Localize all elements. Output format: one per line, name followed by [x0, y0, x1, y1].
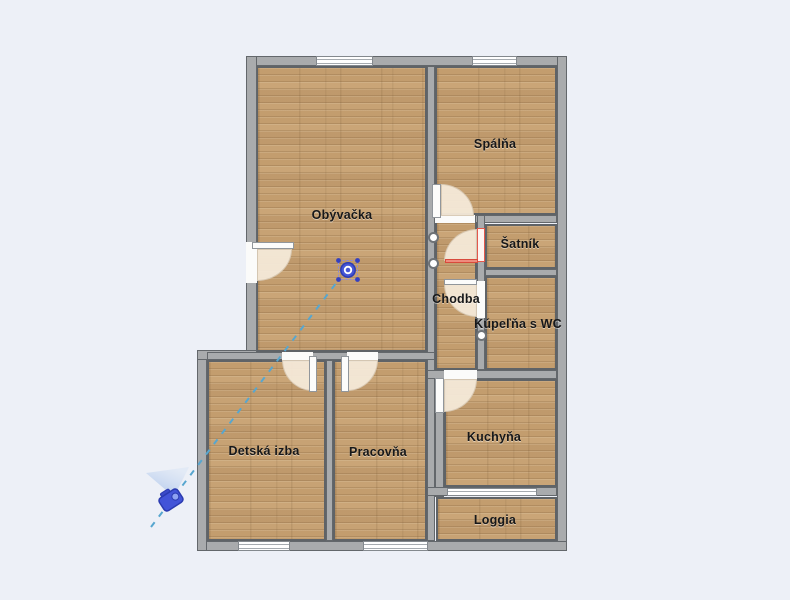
- selection-handle[interactable]: [428, 258, 439, 269]
- wall-obyvacka-bottom[interactable]: [207, 352, 435, 360]
- door-leaf-spalna[interactable]: [432, 184, 441, 218]
- room-label-satnik: Šatník: [501, 237, 540, 251]
- door-opening-spalna: [435, 215, 475, 223]
- wall-satnik-kupelna[interactable]: [485, 269, 557, 276]
- wall-outer-left-upper[interactable]: [246, 56, 257, 360]
- selection-handle[interactable]: [476, 330, 487, 341]
- wall-detska-pracovna[interactable]: [326, 360, 333, 541]
- room-label-kupelna: Kúpeľňa s WC: [474, 317, 562, 331]
- door-leaf-kupelna[interactable]: [444, 279, 477, 285]
- camera-view-cone: [146, 467, 189, 497]
- door-leaf-detska[interactable]: [309, 356, 317, 392]
- door-leaf-kuchyna[interactable]: [435, 378, 444, 413]
- door-opening-pracovna: [347, 352, 378, 360]
- room-label-spalna: Spálňa: [474, 137, 516, 151]
- door-opening-kuchyna: [444, 370, 477, 379]
- room-label-kuchyna: Kuchyňa: [467, 430, 521, 444]
- window-spalna-top[interactable]: [472, 56, 517, 66]
- room-label-loggia: Loggia: [474, 513, 516, 527]
- room-label-pracovna: Pracovňa: [349, 445, 407, 459]
- room-label-chodba: Chodba: [432, 292, 480, 306]
- wall-outer-left-lower[interactable]: [197, 350, 207, 551]
- window-pracovna-bottom[interactable]: [363, 541, 428, 551]
- room-label-obyvacka: Obývačka: [312, 208, 373, 222]
- room-label-detska: Detská izba: [229, 444, 300, 458]
- door-leaf-satnik-selected[interactable]: [445, 259, 478, 263]
- selection-handle[interactable]: [428, 232, 439, 243]
- wall-outer-top[interactable]: [246, 56, 567, 66]
- camera-marker[interactable]: [156, 485, 185, 512]
- door-leaf-obyvacka-left[interactable]: [252, 242, 294, 249]
- door-opening-satnik-selected[interactable]: [477, 228, 485, 262]
- wall-outer-right[interactable]: [557, 56, 567, 551]
- window-detska-bottom[interactable]: [238, 541, 290, 551]
- window-kuchyna-loggia[interactable]: [447, 488, 537, 496]
- wall-spalna-bottom[interactable]: [475, 215, 557, 223]
- window-obyvacka-top[interactable]: [316, 56, 373, 66]
- door-leaf-pracovna[interactable]: [341, 356, 349, 392]
- floorplan: Obývačka Spálňa Šatník Chodba Kúpeľňa s …: [0, 0, 790, 600]
